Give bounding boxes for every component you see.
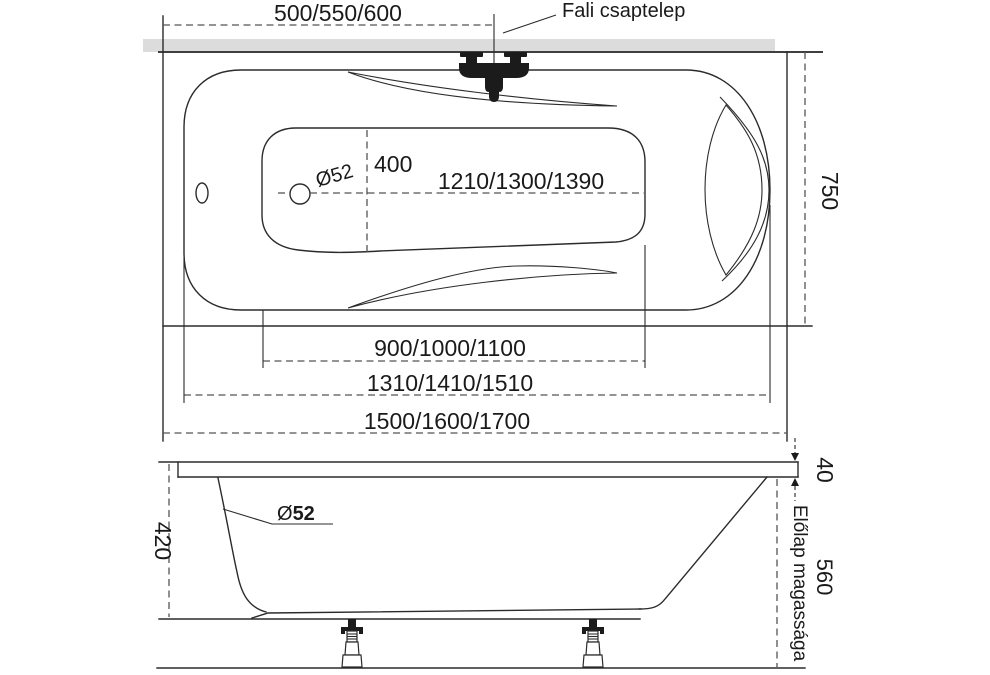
tub-rim-profile bbox=[159, 462, 798, 477]
side-view: 420 Ø52 40 Előlap magassága 560 bbox=[150, 438, 838, 668]
drawing-canvas: 500/550/600 Fali csaptelep 400 Ø52 1210/… bbox=[0, 0, 990, 675]
overflow-hole bbox=[196, 183, 208, 203]
wall-band bbox=[143, 39, 775, 52]
dim-drain-offset: 400 bbox=[374, 151, 412, 177]
dim-drain-to-end: 1210/1300/1390 bbox=[438, 168, 604, 194]
front-panel-label: Előlap magassága bbox=[789, 505, 810, 662]
dim-opening-length: 1310/1410/1510 bbox=[367, 370, 533, 396]
dim-rim-height: 40 bbox=[812, 457, 838, 483]
wall-faucet-label: Fali csaptelep bbox=[562, 0, 685, 22]
interior-contour-bottom bbox=[348, 266, 617, 308]
faucet-label-leader bbox=[503, 15, 556, 33]
dim-overall-length: 1500/1600/1700 bbox=[364, 408, 530, 434]
tub-shell-profile bbox=[159, 477, 767, 619]
dim-floor-length: 900/1000/1100 bbox=[374, 335, 526, 361]
dim-panel-height: 560 bbox=[812, 559, 837, 596]
headrest-contour bbox=[705, 105, 762, 275]
bathtub-technical-drawing: 500/550/600 Fali csaptelep 400 Ø52 1210/… bbox=[0, 0, 990, 675]
adjustable-foot-icon-right bbox=[582, 619, 604, 667]
dim-width: 750 bbox=[817, 172, 843, 210]
plan-view: 500/550/600 Fali csaptelep 400 Ø52 1210/… bbox=[143, 0, 843, 441]
dim-depth: 420 bbox=[150, 522, 176, 560]
drain-hole bbox=[290, 184, 310, 204]
drain-diameter-label-side: Ø52 bbox=[277, 503, 315, 525]
adjustable-foot-icon-left bbox=[341, 619, 363, 667]
drain-diameter-label: Ø52 bbox=[313, 160, 355, 192]
dim-faucet-position: 500/550/600 bbox=[274, 0, 402, 26]
